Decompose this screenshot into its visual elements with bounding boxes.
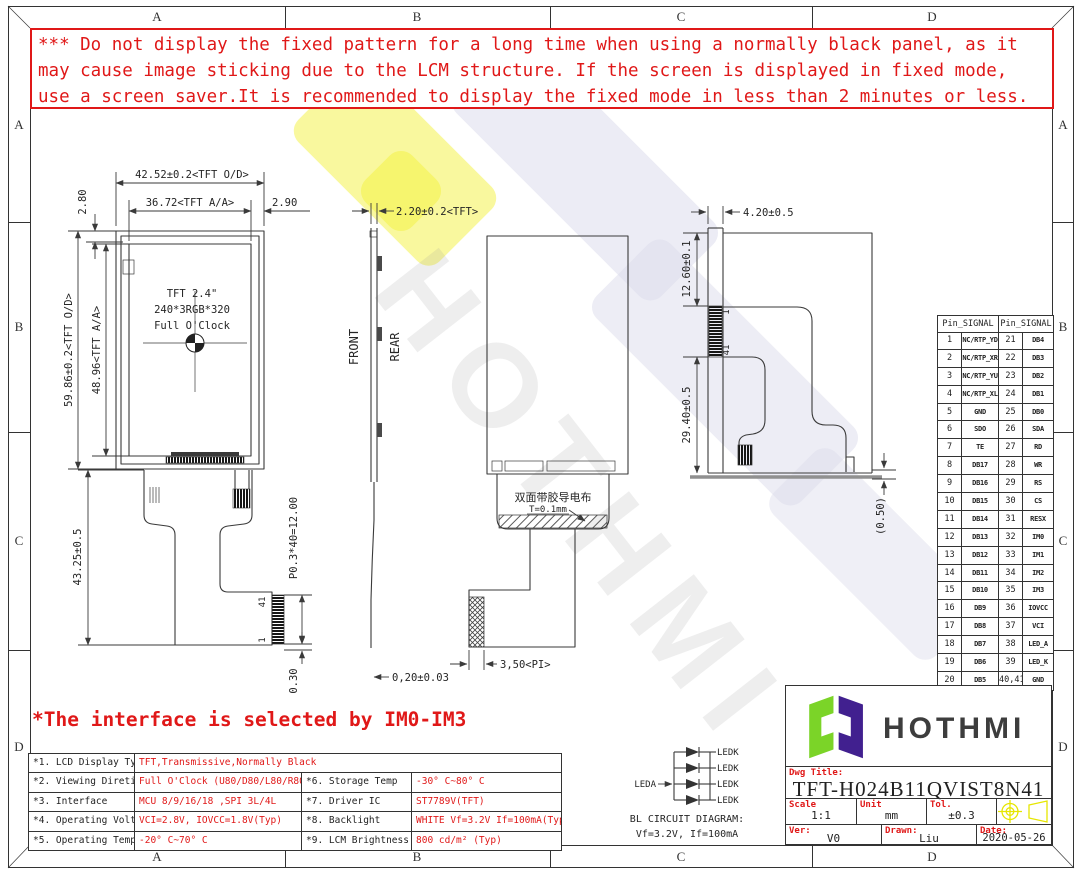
spec-value: VCI=2.8V, IOVCC=1.8V(Typ) [134,812,301,830]
pin-signal: TE [962,439,999,457]
scale-value: 1:1 [786,809,856,822]
pin-number: 26 [999,421,1023,439]
pin-signal: NC/RTP_YD [962,332,999,350]
pin-signal: DB1 [1023,386,1053,404]
zone-label-left-d: D [14,739,23,755]
pin-number: 15 [938,582,962,600]
pin-signal: GND [962,404,999,422]
spec-value: -20° C~70° C [134,832,301,850]
warning-line-3: use a screen saver.It is recommended to … [38,84,1052,110]
spec-label: *3. Interface [29,793,134,811]
spec-row: *1. LCD Display Type TFT,Transmissive,No… [29,754,561,772]
hothmi-logo-icon [804,689,882,765]
pin-signal: RS [1023,475,1053,493]
zone-label-right-c: C [1059,533,1068,549]
pin-table-row: 16 DB9 36 IOVCC [938,600,1053,618]
pin-number: 28 [999,457,1023,475]
warning-line-2: may cause image sticking due to the LCM … [38,58,1052,84]
pin-signal: RD [1023,439,1053,457]
pin-table-header: Pin_SIGNAL Pin_SIGNAL [938,316,1053,332]
pin-signal: IOVCC [1023,600,1053,618]
spec-value: Full O'Clock (U80/D80/L80/R80) [134,773,301,791]
pin-signal: NC/RTP_XL [962,386,999,404]
pin-table-body: 1 NC/RTP_YD 21 DB4 2 NC/RTP_XR 22 DB3 3 … [938,332,1053,690]
zone-label-bottom-a: A [152,849,161,865]
pin-signal: IM1 [1023,547,1053,565]
pin-signal: DB2 [1023,368,1053,386]
spec-label: *5. Operating Temp [29,832,134,850]
pin-table-row: 4 NC/RTP_XL 24 DB1 [938,386,1053,404]
drawing-sheet: HOTHMI [0,0,1081,874]
pin-number: 34 [999,565,1023,583]
pin-table-row: 6 SDO 26 SDA [938,421,1053,439]
pin-table-row: 11 DB14 31 RESX [938,511,1053,529]
pin-signal: DB4 [1023,332,1053,350]
pin-number: 14 [938,565,962,583]
spec-table: *1. LCD Display Type TFT,Transmissive,No… [28,753,562,851]
spec-label: *6. Storage Temp [301,773,411,791]
pin-number: 31 [999,511,1023,529]
spec-label: *2. Viewing Diretion [29,773,134,791]
pin-number: 29 [999,475,1023,493]
pin-signal: LED_A [1023,636,1053,654]
pin-table-header-cell: Pin_SIGNAL [999,316,1053,333]
zone-label-bottom-b: B [413,849,422,865]
pin-number: 38 [999,636,1023,654]
pin-number: 7 [938,439,962,457]
pin-signal: DB16 [962,475,999,493]
pin-number: 12 [938,529,962,547]
warning-line-1: *** Do not display the fixed pattern for… [38,32,1052,58]
spec-value: ST7789V(TFT) [411,793,561,811]
pin-signal: DB3 [1023,350,1053,368]
unit-value: mm [857,809,926,822]
pin-number: 23 [999,368,1023,386]
spec-value: WHITE Vf=3.2V If=100mA(Typ) [411,812,561,830]
pin-table-row: 12 DB13 32 IM0 [938,529,1053,547]
projection-symbol-icon [997,799,1052,824]
pin-number: 16 [938,600,962,618]
pin-number: 10 [938,493,962,511]
pin-signal: SDO [962,421,999,439]
zone-label-top-d: D [927,9,936,25]
title-block: HOTHMI Dwg Title: TFT-H024B11QVIST8N41 S… [785,685,1052,845]
pin-signal: RESX [1023,511,1053,529]
zone-label-right-d: D [1058,739,1067,755]
drawn-value: Liu [882,832,976,845]
spec-label: *9. LCM Brightness [301,832,411,850]
pin-signal: NC/RTP_XR [962,350,999,368]
pin-number: 11 [938,511,962,529]
pin-table-row: 5 GND 25 DB0 [938,404,1053,422]
pin-number: 30 [999,493,1023,511]
pin-table-row: 2 NC/RTP_XR 22 DB3 [938,350,1053,368]
scale-unit-tol-row: Scale 1:1 Unit mm Tol. ±0.3 [786,798,1051,824]
pin-signal: DB17 [962,457,999,475]
pin-table-row: 18 DB7 38 LED_A [938,636,1053,654]
pin-signal: DB0 [1023,404,1053,422]
pin-table-row: 9 DB16 29 RS [938,475,1053,493]
warning-box: *** Do not display the fixed pattern for… [30,28,1054,109]
pin-number: 13 [938,547,962,565]
zone-label-left-c: C [15,533,24,549]
zone-label-left-b: B [15,319,24,335]
pin-table-row: 13 DB12 33 IM1 [938,547,1053,565]
pin-signal: WR [1023,457,1053,475]
pin-table-row: 14 DB11 34 IM2 [938,565,1053,583]
pin-signal: DB9 [962,600,999,618]
pin-signal: DB10 [962,582,999,600]
pin-table-row: 1 NC/RTP_YD 21 DB4 [938,332,1053,350]
pin-number: 8 [938,457,962,475]
pin-signal: VCI [1023,618,1053,636]
spec-label: *7. Driver IC [301,793,411,811]
zone-label-top-a: A [152,9,161,25]
spec-label: *8. Backlight [301,812,411,830]
pin-number: 33 [999,547,1023,565]
pin-number: 22 [999,350,1023,368]
dwg-title-row: Dwg Title: TFT-H024B11QVIST8N41 [786,766,1051,798]
pin-number: 32 [999,529,1023,547]
pin-table-row: 19 DB6 39 LED_K [938,654,1053,672]
interface-note: *The interface is selected by IM0-IM3 [32,708,466,731]
pin-number: 27 [999,439,1023,457]
pin-signal: IM0 [1023,529,1053,547]
pin-number: 18 [938,636,962,654]
pin-signal: DB7 [962,636,999,654]
pin-signal: NC/RTP_YU [962,368,999,386]
spec-row: *3. Interface MCU 8/9/16/18 ,SPI 3L/4L *… [29,792,561,811]
pin-table-row: 3 NC/RTP_YU 23 DB2 [938,368,1053,386]
pin-number: 39 [999,654,1023,672]
pin-signal: DB14 [962,511,999,529]
pin-number: 17 [938,618,962,636]
pin-number: 35 [999,582,1023,600]
pin-number: 36 [999,600,1023,618]
brand-text: HOTHMI [883,712,1025,746]
zone-label-bottom-d: D [927,849,936,865]
pin-number: 19 [938,654,962,672]
pin-number: 25 [999,404,1023,422]
pin-signal: LED_K [1023,654,1053,672]
zone-label-top-c: C [677,9,686,25]
spec-value: TFT,Transmissive,Normally Black [134,754,561,772]
pin-signal: CS [1023,493,1053,511]
pin-number: 4 [938,386,962,404]
zone-label-right-a: A [1058,117,1067,133]
pin-signal: DB12 [962,547,999,565]
pin-table-row: 17 DB8 37 VCI [938,618,1053,636]
pin-table-row: 15 DB10 35 IM3 [938,582,1053,600]
zone-label-top-b: B [413,9,422,25]
pin-number: 1 [938,332,962,350]
pin-signal-table: Pin_SIGNAL Pin_SIGNAL 1 NC/RTP_YD 21 DB4… [937,315,1054,691]
pin-number: 21 [999,332,1023,350]
spec-value: 800 cd/m² (Typ) [411,832,561,850]
pin-number: 37 [999,618,1023,636]
pin-signal: DB15 [962,493,999,511]
spec-value: MCU 8/9/16/18 ,SPI 3L/4L [134,793,301,811]
pin-signal: DB6 [962,654,999,672]
pin-number: 24 [999,386,1023,404]
spec-row: *5. Operating Temp -20° C~70° C *9. LCM … [29,831,561,850]
pin-table-row: 10 DB15 30 CS [938,493,1053,511]
spec-row: *4. Operating Voltage VCI=2.8V, IOVCC=1.… [29,811,561,830]
pin-number: 3 [938,368,962,386]
pin-number: 2 [938,350,962,368]
ver-value: V0 [786,832,881,845]
pin-signal: DB13 [962,529,999,547]
pin-table-row: 8 DB17 28 WR [938,457,1053,475]
zone-label-right-b: B [1059,319,1068,335]
pin-number: 6 [938,421,962,439]
pin-signal: IM3 [1023,582,1053,600]
pin-table-row: 7 TE 27 RD [938,439,1053,457]
date-value: 2020-05-26 [977,832,1051,844]
pin-signal: DB8 [962,618,999,636]
spec-row: *2. Viewing Diretion Full O'Clock (U80/D… [29,772,561,791]
pin-number: 9 [938,475,962,493]
spec-label: *4. Operating Voltage [29,812,134,830]
pin-signal: SDA [1023,421,1053,439]
tol-value: ±0.3 [927,809,996,822]
zone-label-bottom-c: C [677,849,686,865]
pin-signal: DB11 [962,565,999,583]
spec-label: *1. LCD Display Type [29,754,134,772]
pin-signal: IM2 [1023,565,1053,583]
pin-number: 5 [938,404,962,422]
ver-drawn-date-row: Ver: V0 Drawn: Liu Date: 2020-05-26 [786,824,1051,845]
pin-table-header-cell: Pin_SIGNAL [938,316,999,333]
zone-label-left-a: A [14,117,23,133]
spec-value: -30° C~80° C [411,773,561,791]
